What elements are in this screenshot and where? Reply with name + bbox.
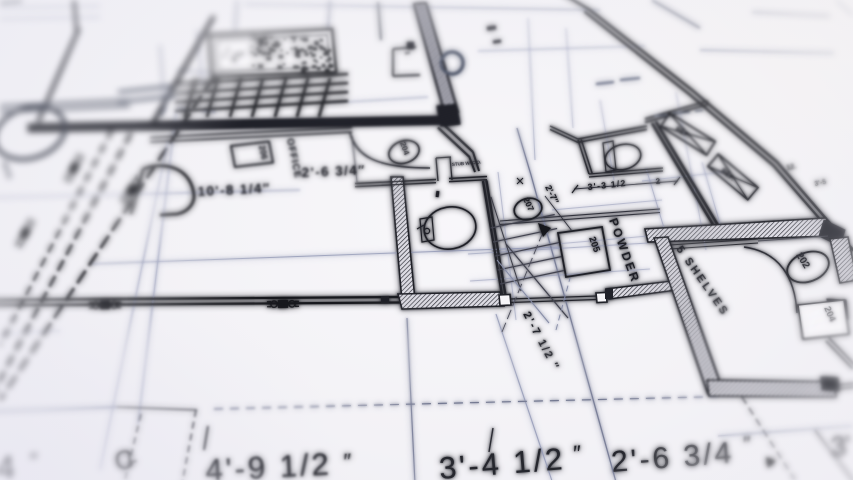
- svg-text:202: 202: [793, 251, 811, 271]
- svg-text:2'-6 3/4: 2'-6 3/4: [610, 436, 735, 479]
- svg-text:REF.: REF.: [720, 167, 736, 182]
- svg-text:206: 206: [257, 144, 270, 160]
- svg-text:L: L: [126, 447, 138, 467]
- svg-text:OFFICE: OFFICE: [284, 137, 303, 179]
- svg-text:POWDER: POWDER: [606, 216, 643, 285]
- svg-text:2'-6 3/4″: 2'-6 3/4″: [301, 162, 366, 180]
- svg-text:4: 4: [0, 448, 16, 480]
- svg-text:4'-9 1/2: 4'-9 1/2: [205, 446, 333, 480]
- svg-text:10'-8 1/4″: 10'-8 1/4″: [197, 180, 271, 199]
- svg-text:205: 205: [586, 235, 602, 254]
- svg-text:2'-7 1/2 ″: 2'-7 1/2 ″: [520, 310, 561, 373]
- svg-text:3'-4 1/2: 3'-4 1/2: [438, 441, 567, 480]
- svg-text:2: 2: [403, 51, 410, 57]
- svg-text:3'-5: 3'-5: [814, 179, 827, 188]
- svg-text:3'-3 1/2: 3'-3 1/2: [587, 178, 627, 192]
- svg-text:2: 2: [655, 177, 661, 186]
- svg-text:REF.: REF.: [674, 126, 691, 140]
- svg-text:12.: 12.: [786, 163, 797, 172]
- svg-text:″: ″: [29, 448, 38, 474]
- svg-text:″: ″: [572, 440, 582, 466]
- svg-text:″: ″: [743, 432, 753, 456]
- svg-text:MAIN: MAIN: [0, 160, 12, 179]
- svg-text:3': 3': [829, 430, 852, 462]
- svg-text:2'-7″: 2'-7″: [543, 183, 561, 205]
- svg-text:″: ″: [343, 449, 352, 474]
- svg-text:204: 204: [398, 141, 411, 157]
